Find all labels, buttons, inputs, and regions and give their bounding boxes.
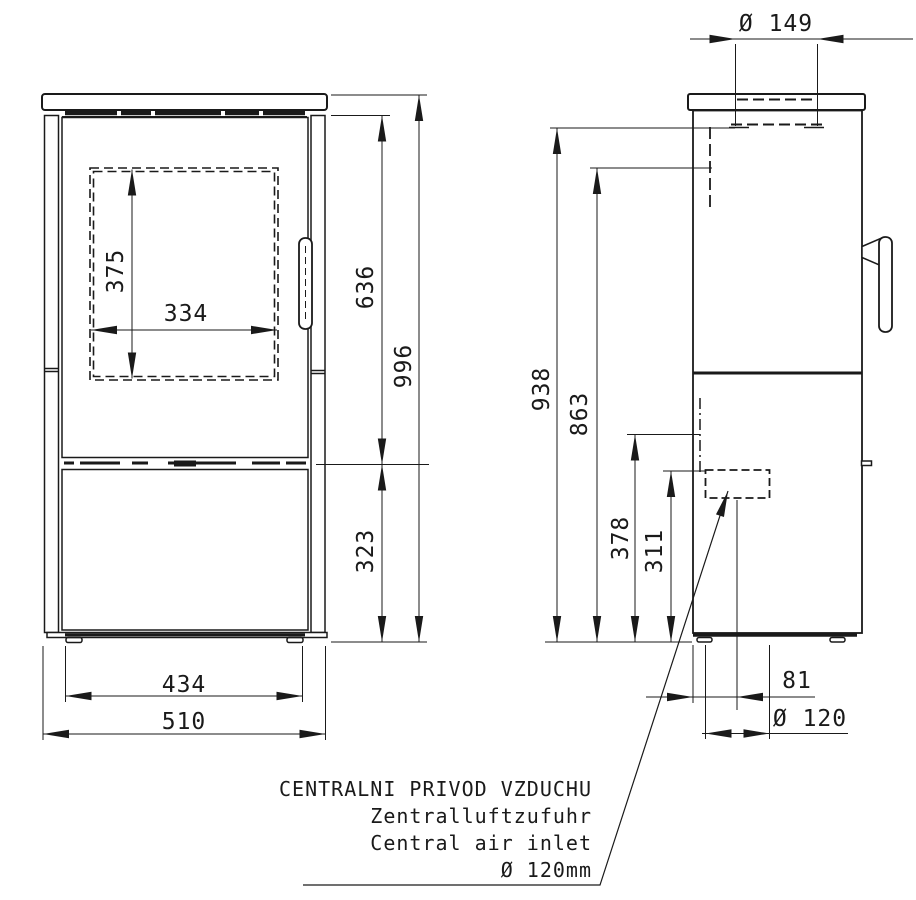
side-view xyxy=(688,94,892,642)
air-inlet-note: CENTRALNI PRIVOD VZDUCHU Zentralluftzufu… xyxy=(279,776,592,884)
dim-front-overall-height: 996 xyxy=(391,344,417,389)
front-top-plate xyxy=(42,94,327,110)
side-front-foot xyxy=(697,638,712,643)
side-air-inlet-dashed xyxy=(706,470,770,498)
dim-side-inlet-diameter: Ø 120 xyxy=(773,706,847,732)
dim-side-inlet-offset: 81 xyxy=(782,668,812,694)
dim-front-body-width: 434 xyxy=(162,672,207,698)
dim-side-inlet-center-height: 311 xyxy=(642,529,668,574)
side-handle-bar xyxy=(879,237,892,332)
side-handle-bracket xyxy=(862,239,881,266)
front-lower-door xyxy=(62,470,308,631)
dim-front-window-height: 375 xyxy=(103,249,129,294)
dim-side-flue-front-height: 938 xyxy=(529,367,555,412)
side-latch-pin xyxy=(862,461,872,466)
dim-side-inlet-top-height: 378 xyxy=(608,516,634,561)
dim-front-overall-width: 510 xyxy=(162,709,207,735)
dim-side-flue-diameter: Ø 149 xyxy=(739,11,813,37)
front-right-foot xyxy=(287,638,303,643)
dim-front-lower-height: 323 xyxy=(353,529,379,574)
front-dimension-lines xyxy=(43,95,429,740)
air-inlet-note-line-en: Central air inlet xyxy=(279,830,592,857)
front-left-panel xyxy=(45,116,59,633)
front-left-foot xyxy=(66,638,82,643)
dim-front-upper-height: 636 xyxy=(353,265,379,310)
dim-side-flue-rear-height: 863 xyxy=(567,392,593,437)
dim-front-window-width: 334 xyxy=(164,301,209,327)
side-top-plate xyxy=(688,94,865,110)
air-inlet-note-diameter: Ø 120mm xyxy=(279,857,592,884)
drawing-geometry xyxy=(0,0,916,900)
front-view xyxy=(42,94,327,643)
air-inlet-note-line-de: Zentralluftzufuhr xyxy=(279,803,592,830)
stove-dimension-drawing: 375 334 636 996 323 434 510 Ø 149 938 86… xyxy=(0,0,916,900)
air-inlet-note-line-cs: CENTRALNI PRIVOD VZDUCHU xyxy=(279,776,592,803)
side-rear-foot xyxy=(830,638,845,643)
